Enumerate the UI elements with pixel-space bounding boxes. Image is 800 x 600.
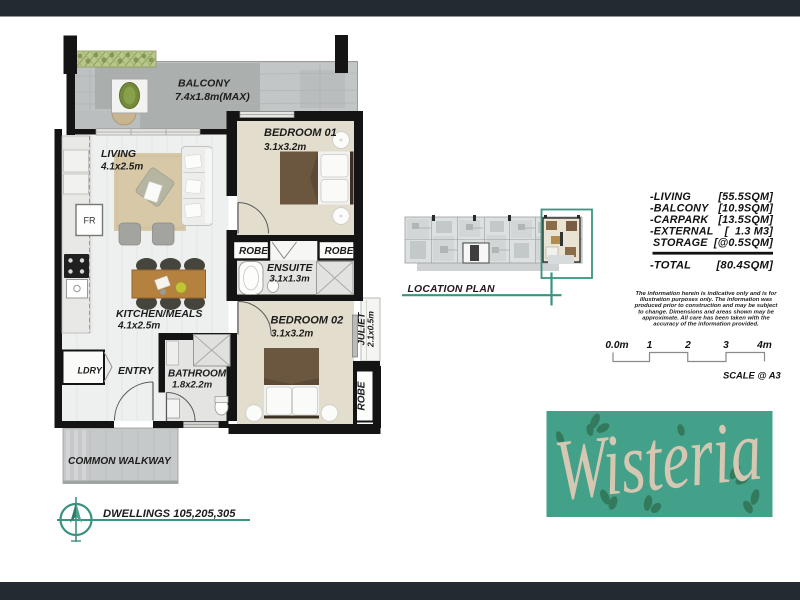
svg-text:BEDROOM 02: BEDROOM 02 — [271, 315, 344, 327]
svg-text:ENTRY: ENTRY — [118, 365, 154, 377]
svg-text:-CARPARK: -CARPARK — [650, 214, 709, 226]
svg-text:BEDROOM 01: BEDROOM 01 — [264, 127, 337, 139]
svg-text:FR: FR — [84, 216, 96, 226]
svg-text:illustration purposes only. Th: illustration purposes only. The informat… — [640, 297, 773, 303]
svg-text:ROBE: ROBE — [325, 246, 354, 257]
svg-text:accuracy of the information pr: accuracy of the information provided. — [653, 322, 759, 328]
svg-text:-TOTAL: -TOTAL — [650, 260, 691, 272]
svg-text:[55.5SQM]: [55.5SQM] — [717, 191, 773, 203]
svg-text:BALCONY: BALCONY — [178, 78, 231, 90]
svg-text:ROBE: ROBE — [357, 381, 368, 410]
svg-text:4.1x2.5m: 4.1x2.5m — [100, 162, 143, 173]
svg-text:2: 2 — [684, 340, 691, 351]
svg-text:ENSUITE: ENSUITE — [267, 262, 314, 274]
svg-text:approximate. All care has been: approximate. All care has been taken wit… — [642, 315, 770, 321]
svg-text:LIVING: LIVING — [101, 148, 136, 160]
svg-text:2.1x0.5m: 2.1x0.5m — [366, 311, 376, 348]
svg-text:STORAGE: STORAGE — [653, 237, 708, 249]
svg-text:4.1x2.5m: 4.1x2.5m — [117, 321, 160, 332]
svg-text:LDRY: LDRY — [78, 366, 103, 376]
svg-text:3: 3 — [723, 340, 729, 351]
svg-text:DWELLINGS 105,205,305: DWELLINGS 105,205,305 — [103, 508, 236, 520]
svg-text:3.1x3.2m: 3.1x3.2m — [271, 329, 313, 340]
svg-text:0.0m: 0.0m — [605, 340, 628, 351]
svg-text:1.8x2.2m: 1.8x2.2m — [172, 380, 213, 391]
svg-text:LOCATION PLAN: LOCATION PLAN — [408, 284, 496, 295]
svg-text:7.4x1.8m(MAX): 7.4x1.8m(MAX) — [175, 91, 250, 103]
svg-text:KITCHEN/MEALS: KITCHEN/MEALS — [116, 308, 202, 320]
svg-text:-BALCONY: -BALCONY — [650, 203, 710, 215]
svg-text:-LIVING: -LIVING — [650, 191, 691, 203]
svg-text:[10.9SQM]: [10.9SQM] — [717, 203, 773, 215]
svg-text:SCALE @ A3: SCALE @ A3 — [723, 370, 782, 381]
svg-text:COMMON WALKWAY: COMMON WALKWAY — [68, 456, 172, 467]
svg-text:[ 1.3 M3]: [ 1.3 M3] — [724, 226, 773, 238]
svg-text:ROBE: ROBE — [239, 246, 268, 257]
svg-text:4m: 4m — [756, 340, 772, 351]
svg-text:BATHROOM: BATHROOM — [168, 369, 227, 380]
svg-text:to change. Dimensions and area: to change. Dimensions and areas shown ma… — [638, 309, 775, 315]
svg-text:-EXTERNAL: -EXTERNAL — [650, 226, 714, 238]
svg-text:1: 1 — [647, 340, 653, 351]
svg-text:[80.4SQM]: [80.4SQM] — [715, 260, 774, 272]
svg-text:3.1x3.2m: 3.1x3.2m — [264, 142, 306, 153]
svg-text:produced prior to construction: produced prior to construction and may b… — [634, 303, 779, 309]
svg-text:The information herein is indi: The information herein is indicative onl… — [635, 291, 777, 297]
svg-text:[@0.5SQM]: [@0.5SQM] — [713, 237, 773, 249]
svg-text:3.1x1.3m: 3.1x1.3m — [270, 274, 311, 285]
svg-text:[13.5SQM]: [13.5SQM] — [717, 214, 773, 226]
